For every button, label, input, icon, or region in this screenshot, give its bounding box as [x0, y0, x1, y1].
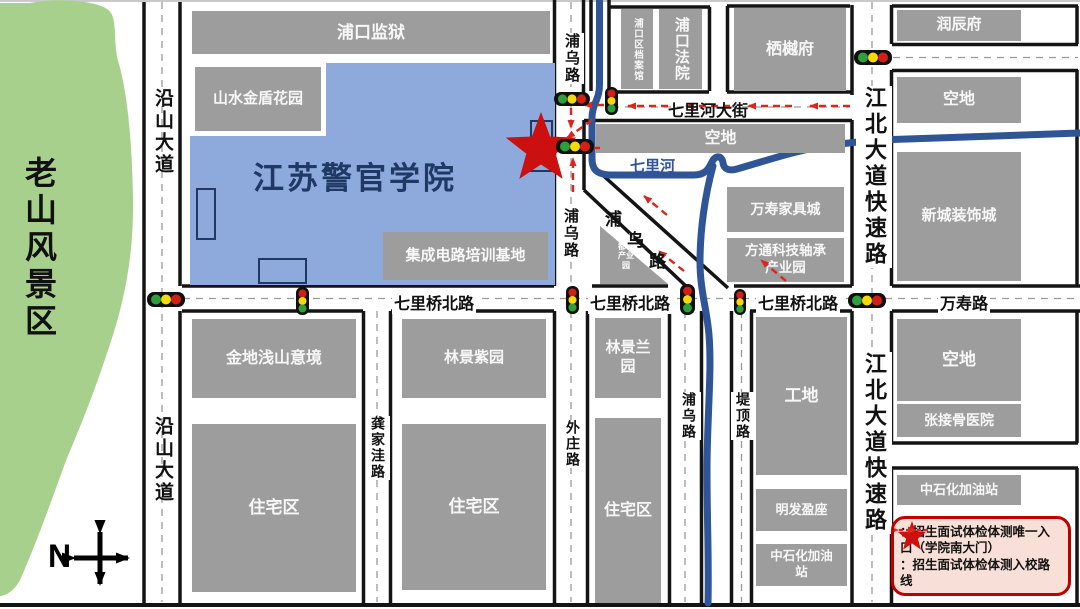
block-jindi: 金地浅山意境: [192, 319, 356, 398]
label-puwu-diag-char-1: 浦: [605, 205, 622, 230]
block-residential-1: 住宅区: [192, 424, 356, 592]
compass-north-label: N: [48, 538, 71, 575]
campus-building: [258, 258, 307, 284]
block-xincheng-deco: 新城装饰城: [897, 152, 1021, 281]
block-vacant-w: 空地: [596, 124, 845, 153]
legend-entry-route: ：招生面试体检体测入校路线: [900, 557, 1062, 590]
block-zhang-hospital: 张接骨医院: [897, 404, 1021, 437]
block-residential-2: 住宅区: [402, 424, 546, 590]
block-wanshou-furniture: 万寿家具城: [727, 187, 844, 232]
label-qiliqiao-road-3: 七里桥北路: [756, 290, 840, 314]
block-sinopec-e: 中石化加油站: [897, 475, 1021, 505]
label-scenic-area: 老山风景区: [16, 156, 62, 341]
label-puwu-road-n2: 浦乌路: [558, 208, 583, 259]
label-yanshan-road-2: 沿山大道: [149, 416, 176, 504]
block-linjing-orchid-label: 林景兰园: [603, 339, 653, 377]
frame-top-line: [0, 0, 1080, 2]
label-puwu-road-n1: 浦乌路: [559, 33, 584, 84]
label-qilihe-street: 七里河大街: [668, 97, 748, 121]
label-puwu-road-s: 浦乌路: [677, 392, 701, 440]
legend-box: ：招生面试体检体测唯一入口（学院南大门） ：招生面试体检体测入校路线: [891, 516, 1071, 596]
block-runchen-mansion: 润辰府: [897, 10, 1021, 41]
label-puwu-diag-char-2: 乌: [627, 226, 644, 251]
block-fangtong-park-label: 方通科技轴承产业园: [740, 243, 832, 277]
block-linjing-orchid: 林景兰园: [595, 318, 661, 398]
block-mingfa: 明发盈座: [756, 489, 847, 531]
legend-route-text: ：招生面试体检体测入校路线: [900, 557, 1062, 590]
block-sinopec-w: 中石化加油站: [756, 544, 847, 586]
label-qilihe-river: 七里河: [630, 155, 675, 176]
block-garden: 山水金盾花园: [195, 67, 321, 131]
label-diding-road: 堤顶路: [731, 392, 755, 440]
legend-route-arrow-icon: [894, 522, 930, 538]
block-linjing-purple: 林景紫园: [402, 319, 546, 398]
campus-building: [196, 188, 216, 240]
block-archives-label: 浦口区档案馆: [631, 18, 643, 81]
block-vacant-se: 空地: [897, 319, 1021, 401]
block-construction: 工地: [756, 317, 847, 475]
label-wanshou-road: 万寿路: [938, 290, 990, 314]
schematic-map: 江苏警官学院 浦口监狱 山水金盾花园 集成电路培训基地 浦口区档案馆 浦口法院 …: [0, 0, 1080, 609]
block-residential-3: 住宅区: [595, 418, 661, 603]
label-yanshan-road-1: 沿山大道: [149, 88, 176, 176]
label-qiliqiao-road-1: 七里桥北路: [392, 290, 476, 314]
block-prison: 浦口监狱: [192, 11, 550, 54]
label-puwu-diag-char-3: 路: [649, 247, 666, 272]
campus-gate-building: [530, 120, 553, 172]
campus-title: 江苏警官学院: [253, 153, 457, 198]
block-archives: 浦口区档案馆: [621, 9, 653, 89]
block-fangtong-park: 方通科技轴承产业园: [727, 238, 844, 282]
label-jiangbei-express-2: 江北大道快速路: [856, 352, 892, 534]
label-qiliqiao-road-2: 七里桥北路: [588, 290, 672, 314]
block-vacant-ne: 空地: [897, 77, 1021, 123]
block-court-label: 浦口法院: [671, 17, 690, 81]
block-court: 浦口法院: [659, 9, 702, 89]
label-jiangbei-express-1: 江北大道快速路: [856, 86, 892, 268]
block-qiyue-mansion: 栖樾府: [734, 8, 846, 91]
block-training-base: 集成电路培训基地: [383, 232, 548, 280]
frame-bottom-line: [0, 603, 1080, 607]
label-waizhuang-road: 外庄路: [561, 420, 585, 468]
block-sinopec-w-label: 中石化加油站: [769, 549, 835, 580]
label-gongjiawa-road: 龚家洼路: [366, 416, 390, 480]
